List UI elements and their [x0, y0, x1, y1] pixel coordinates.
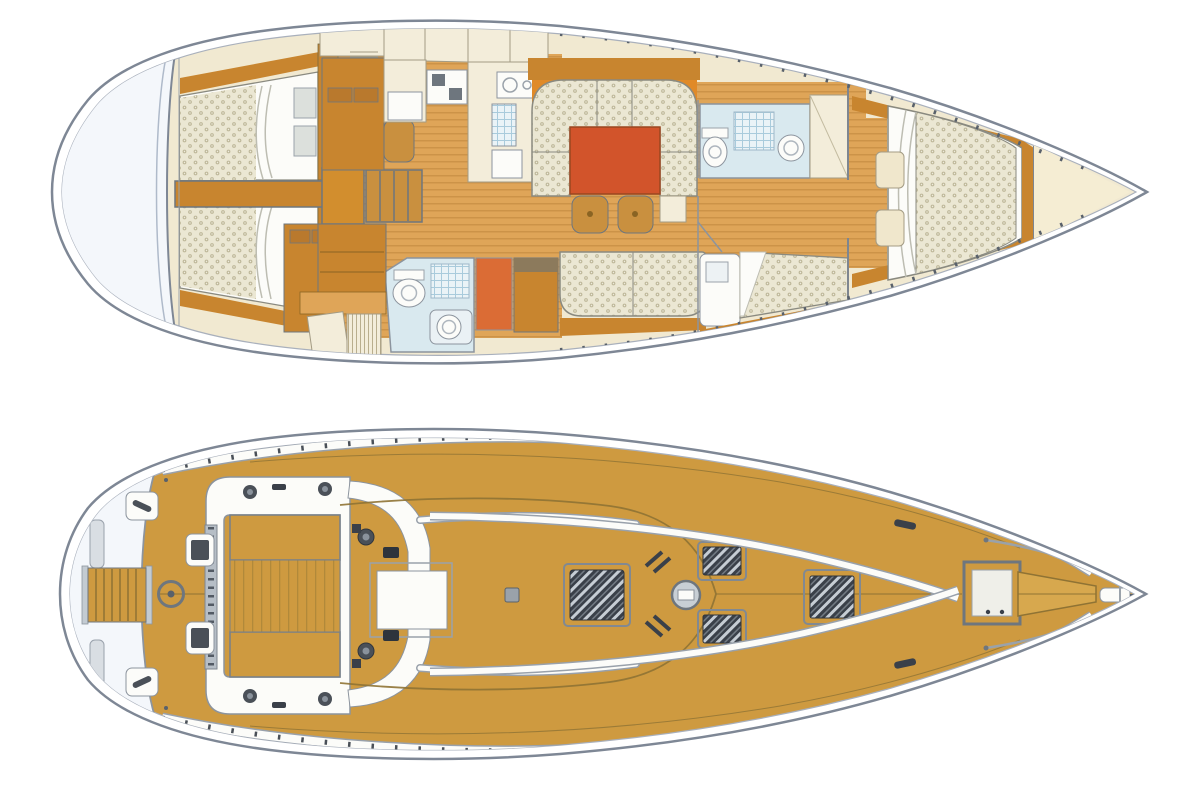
sink: [706, 262, 728, 282]
sink: [437, 315, 461, 339]
nav-seat: [384, 120, 414, 162]
deck-plan: [60, 429, 1146, 759]
rope-clutch: [383, 547, 399, 558]
salon-settee: [560, 252, 706, 336]
wood-backrest: [528, 58, 700, 80]
drawer: [290, 230, 310, 243]
deck-hatch: [703, 615, 741, 643]
transom-vent: [90, 520, 104, 568]
companionway-landing: [322, 168, 364, 224]
deck-hatch: [703, 547, 741, 575]
wet-locker: [476, 258, 512, 330]
aft-head: [385, 258, 474, 352]
cleat: [272, 484, 286, 490]
deck-dot: [164, 706, 168, 710]
master-cabin: [848, 82, 1130, 304]
drawer: [354, 88, 378, 102]
shelf: [300, 292, 386, 314]
rope-clutch: [383, 630, 399, 641]
shower-grate: [431, 264, 469, 298]
cabinet: [318, 224, 386, 294]
drawer: [328, 88, 352, 102]
cockpit-bench: [230, 515, 340, 560]
yacht-layout-svg: [0, 0, 1200, 792]
fridge: [492, 104, 516, 146]
berth-mattress: [180, 85, 256, 180]
step: [660, 196, 686, 222]
deck-hatch: [810, 576, 854, 618]
cockpit-footwell: [230, 560, 340, 632]
wood-trim: [1022, 140, 1034, 246]
shower-grate: [734, 112, 774, 150]
locker: [294, 126, 316, 156]
cleat: [272, 702, 286, 708]
deck-fitting: [352, 524, 361, 533]
companionway: [322, 168, 422, 224]
deck-fitting: [352, 659, 361, 668]
cockpit-bench: [230, 632, 340, 677]
berth-mattress: [180, 204, 256, 299]
deck-dot: [164, 478, 168, 482]
sliding-hatch: [570, 570, 624, 620]
chart-table: [322, 58, 384, 170]
ladder-rail: [146, 566, 152, 624]
deck-organizer: [505, 588, 519, 602]
nightstand: [876, 210, 904, 246]
forward-head: [698, 95, 848, 178]
yacht-layout-diagram: [0, 0, 1200, 792]
dinette-table: [570, 127, 660, 194]
louvered-locker: [347, 314, 381, 356]
counter-unit: [492, 150, 522, 178]
locker: [294, 88, 316, 118]
interior-plan: [52, 21, 1147, 364]
sink: [778, 135, 804, 161]
ladder-rail: [82, 566, 88, 624]
counter-unit: [388, 92, 422, 120]
nightstand: [876, 152, 904, 188]
cabin-divider: [175, 181, 325, 207]
companionway-hatch: [377, 571, 447, 629]
toilet: [393, 279, 425, 307]
toilet: [703, 137, 727, 167]
